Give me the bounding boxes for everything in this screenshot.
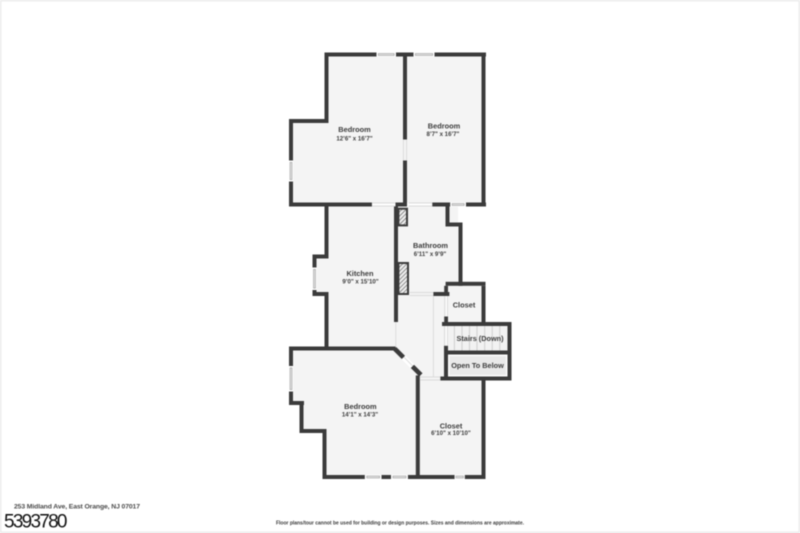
svg-text:5393780: 5393780: [4, 512, 68, 533]
svg-text:Bedroom: Bedroom: [428, 122, 461, 131]
svg-text:12’6" x 16’7": 12’6" x 16’7": [336, 136, 372, 143]
svg-text:253 Midland Ave, East Orange,: 253 Midland Ave, East Orange, NJ 07017: [14, 504, 140, 511]
svg-text:9’0" x 15’10": 9’0" x 15’10": [342, 279, 378, 286]
svg-text:6’10" x 10’10": 6’10" x 10’10": [431, 430, 471, 437]
svg-text:8’7" x 16’7": 8’7" x 16’7": [427, 131, 460, 138]
svg-text:Bedroom: Bedroom: [344, 402, 377, 411]
svg-text:Bathroom: Bathroom: [413, 241, 448, 250]
svg-text:Bedroom: Bedroom: [338, 125, 371, 134]
svg-text:Kitchen: Kitchen: [346, 269, 374, 278]
svg-text:Closet: Closet: [453, 301, 476, 310]
svg-text:Open To Below: Open To Below: [451, 361, 504, 370]
svg-text:Floor plans/tour cannot be use: Floor plans/tour cannot be used for buil…: [276, 521, 525, 527]
svg-text:6’11" x 9’9": 6’11" x 9’9": [414, 251, 447, 258]
svg-text:Stairs (Down): Stairs (Down): [456, 334, 504, 343]
svg-text:14’1" x 14’3": 14’1" x 14’3": [342, 412, 378, 419]
